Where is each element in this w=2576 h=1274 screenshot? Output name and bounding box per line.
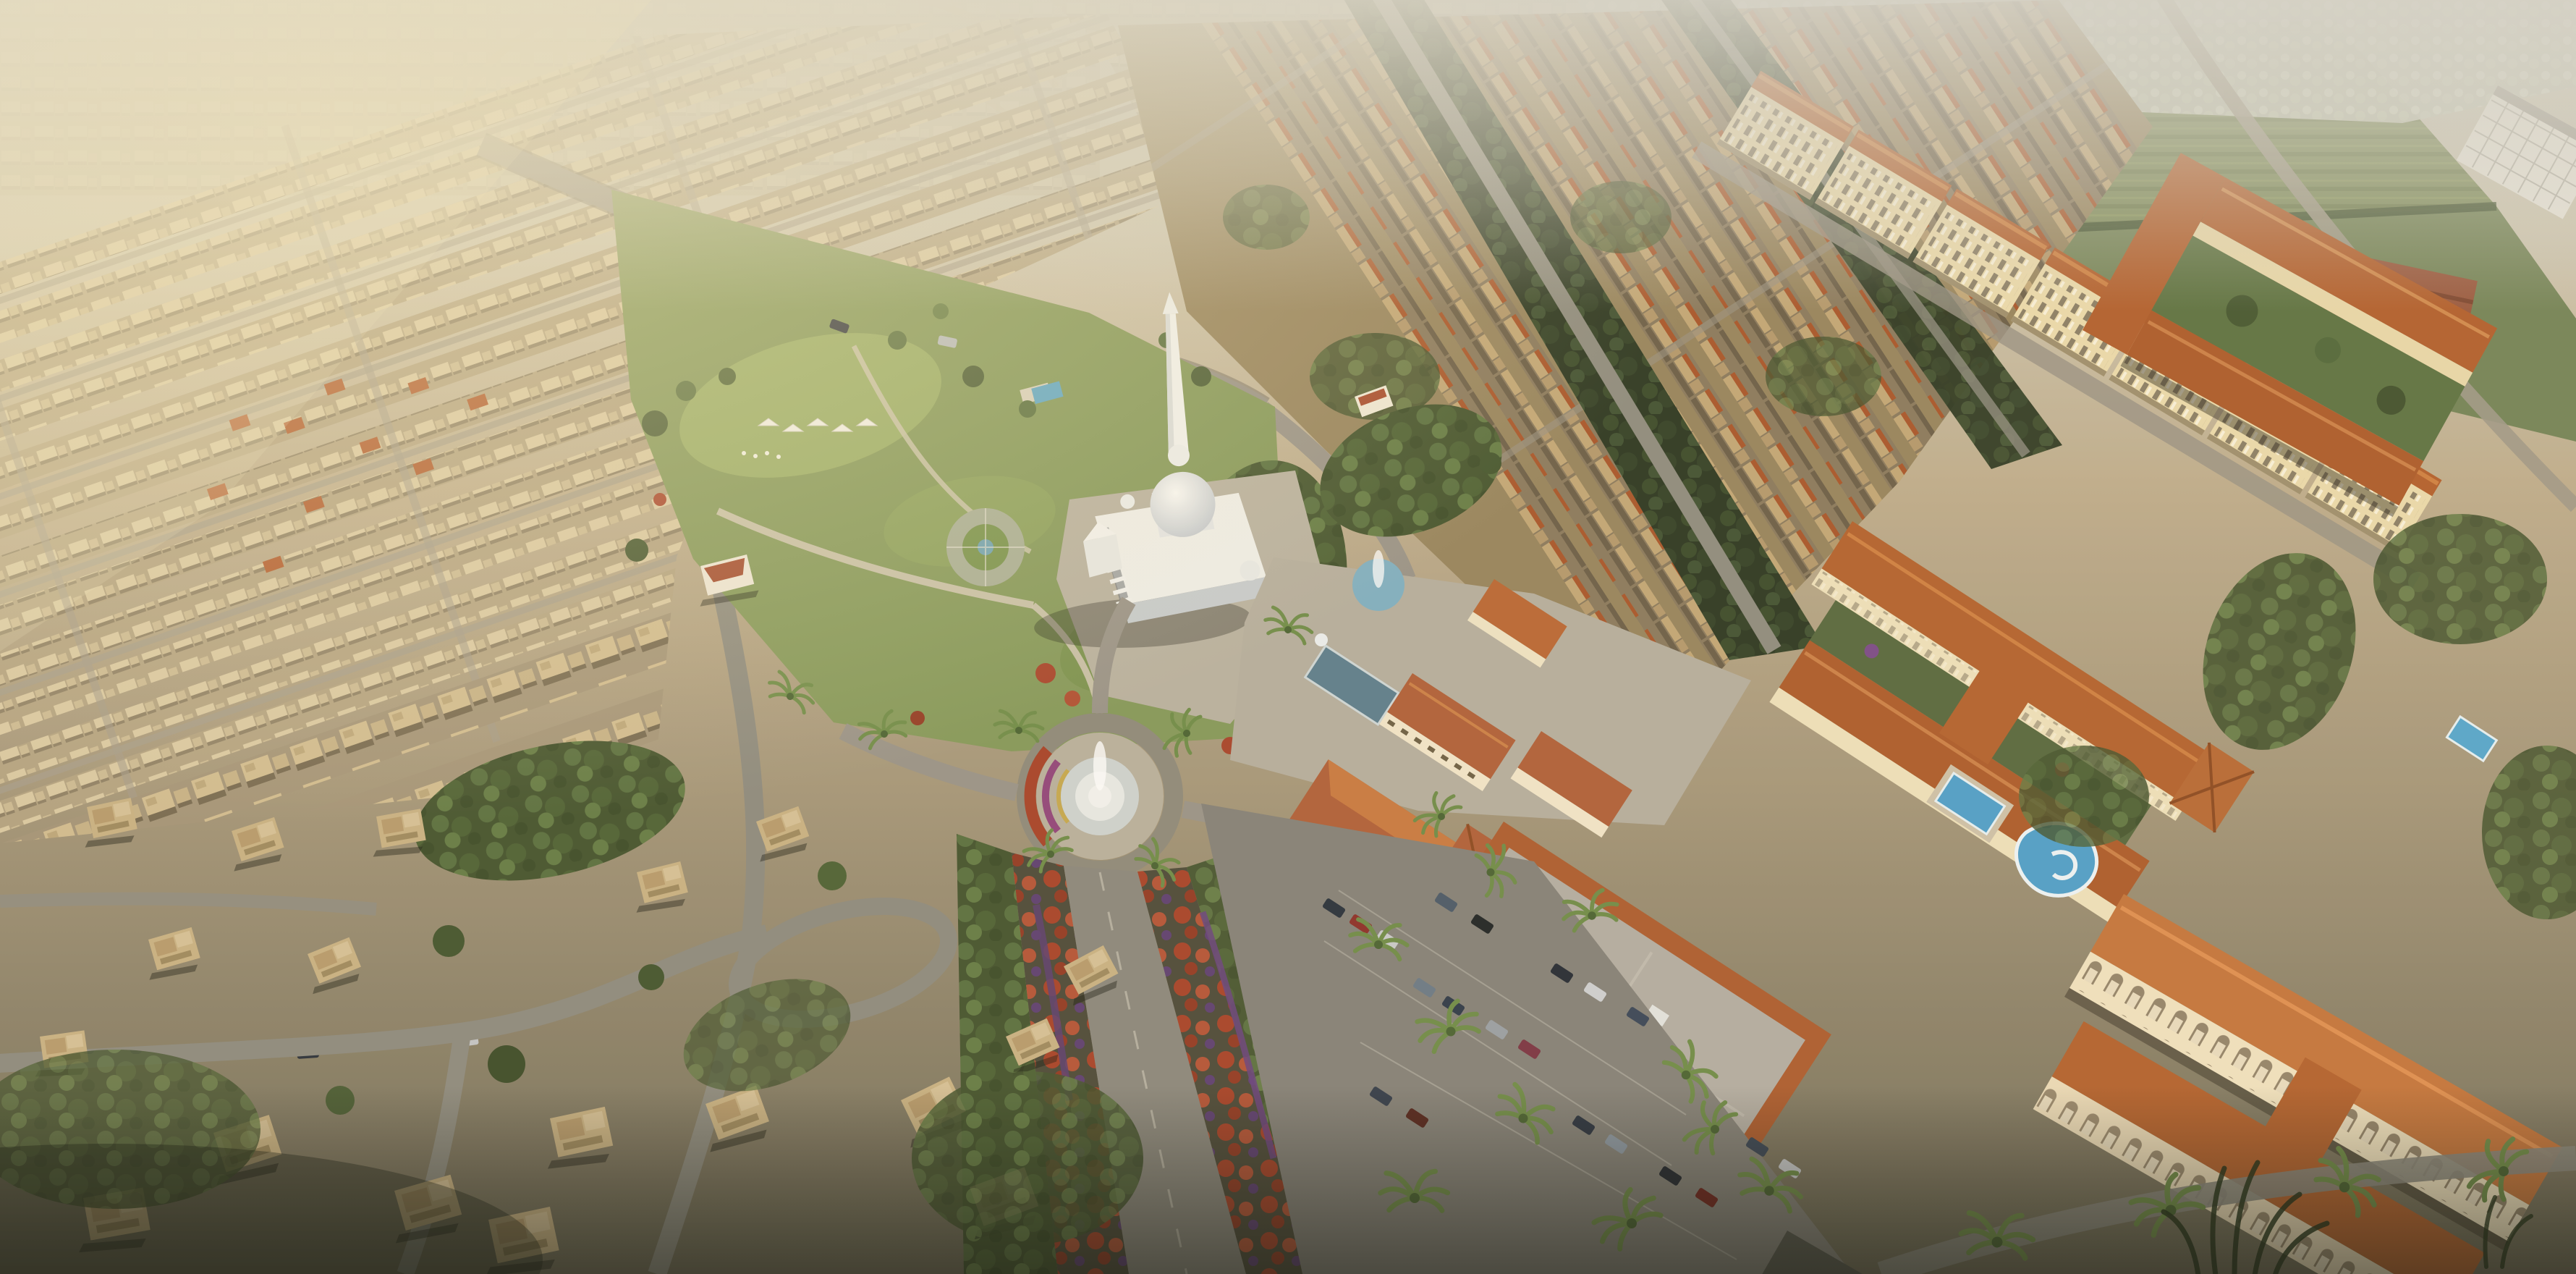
screenshot-root [0, 0, 2576, 1274]
scene-canvas [0, 0, 2576, 1274]
sun-glow [0, 0, 2576, 1274]
